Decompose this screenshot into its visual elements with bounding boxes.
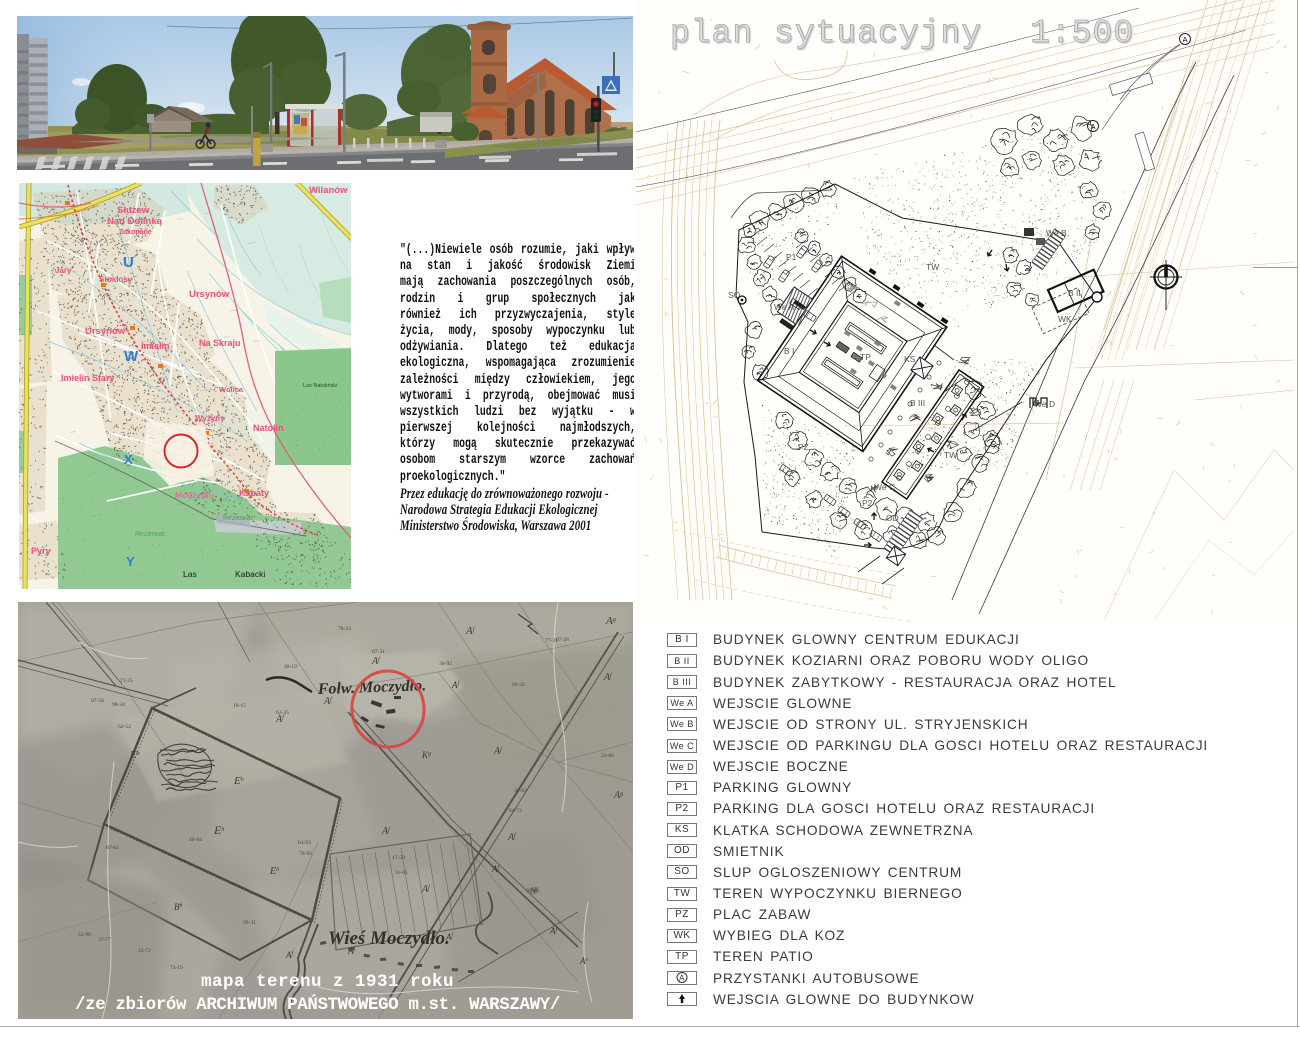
svg-text:Ursynów: Ursynów xyxy=(189,289,230,300)
svg-text:Zakopane: Zakopane xyxy=(119,229,152,236)
svg-text:W: W xyxy=(124,348,139,365)
svg-text:Wilanów: Wilanów xyxy=(309,185,348,196)
svg-text:Służew: Służew xyxy=(117,205,150,216)
svg-text:Wyżyny: Wyżyny xyxy=(195,414,225,423)
svg-text:Kabacki: Kabacki xyxy=(235,569,265,579)
svg-text:Las: Las xyxy=(183,569,197,579)
svg-text:X: X xyxy=(124,452,133,467)
svg-text:Natolin: Natolin xyxy=(253,423,284,433)
svg-text:Moczydło: Moczydło xyxy=(175,490,214,500)
svg-text:Imielin Stary: Imielin Stary xyxy=(61,373,115,383)
svg-text:Rezerwat: Rezerwat xyxy=(223,515,253,522)
svg-text:Wolica: Wolica xyxy=(219,385,244,394)
svg-text:Ursynów: Ursynów xyxy=(85,326,126,337)
svg-text:A: A xyxy=(1182,35,1187,44)
svg-text:Kabaty: Kabaty xyxy=(239,488,269,498)
svg-text:Imielin: Imielin xyxy=(141,341,170,351)
svg-text:Pyry: Pyry xyxy=(31,546,51,556)
svg-text:Las Natoliński: Las Natoliński xyxy=(303,383,337,389)
svg-text:Jary: Jary xyxy=(55,266,72,275)
svg-text:Stokłosy: Stokłosy xyxy=(99,275,133,284)
svg-text:Nad Dolinką: Nad Dolinką xyxy=(107,216,163,227)
svg-text:Rezerwat: Rezerwat xyxy=(135,531,165,538)
svg-text:U: U xyxy=(123,254,134,271)
svg-text:Na Skraju: Na Skraju xyxy=(199,338,241,348)
svg-text:Y: Y xyxy=(126,554,135,569)
